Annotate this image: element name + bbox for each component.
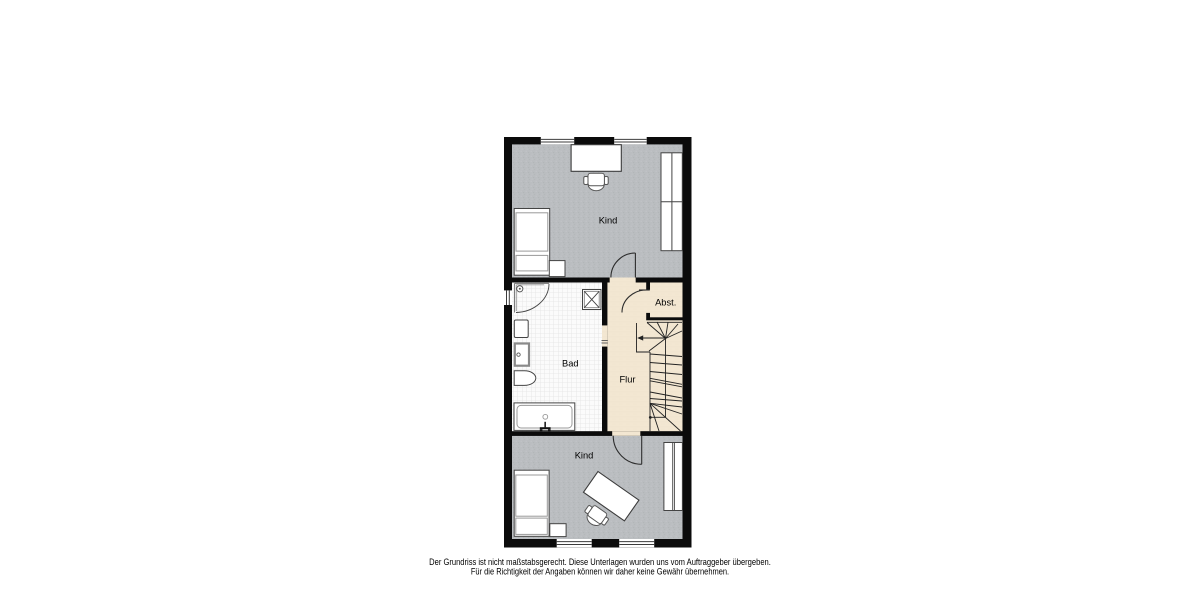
svg-text:Für die Richtigkeit der Angabe: Für die Richtigkeit der Angaben können w…	[471, 566, 729, 576]
svg-text:Kind: Kind	[599, 216, 618, 226]
svg-text:Flur: Flur	[619, 375, 635, 385]
svg-text:Abst.: Abst.	[655, 298, 676, 308]
svg-text:Bad: Bad	[562, 359, 579, 369]
svg-text:Kind: Kind	[575, 451, 594, 461]
